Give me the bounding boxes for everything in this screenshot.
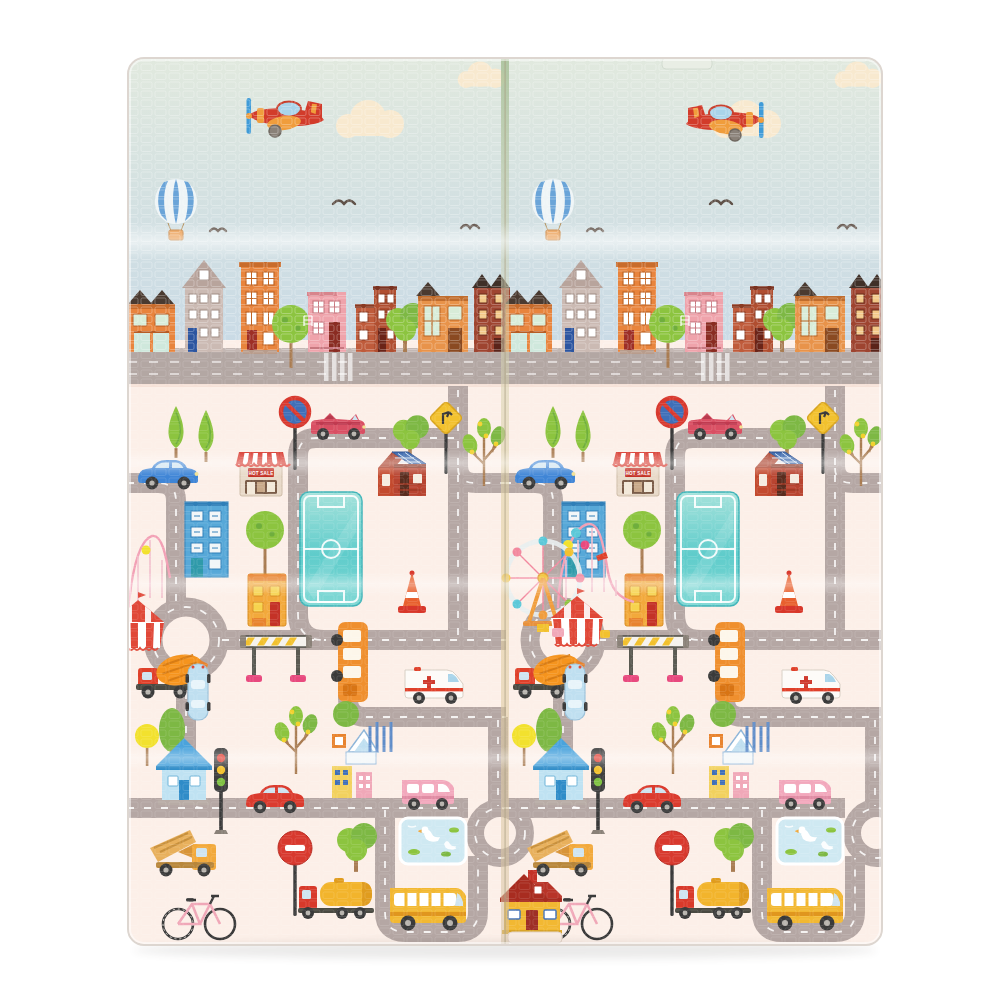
play-mat-scene: HOT SALE — [0, 0, 1000, 1000]
product-photo-play-mat: { "image_type": "product-photo", "subjec… — [0, 0, 1000, 1000]
